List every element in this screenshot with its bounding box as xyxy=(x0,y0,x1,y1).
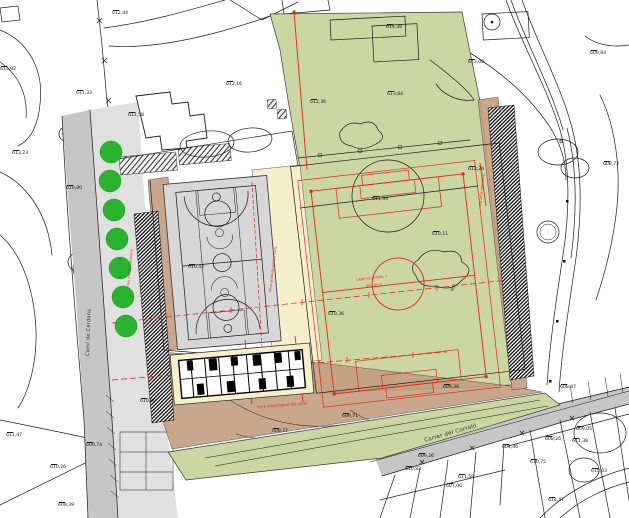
tree-icon xyxy=(103,199,125,221)
tree-icon xyxy=(99,170,121,192)
school-building xyxy=(136,92,207,150)
tree-icon xyxy=(106,228,128,250)
site-plan-drawing: 612,44611,33611,58613,23613,92612,16612,… xyxy=(0,0,629,518)
tree-icon xyxy=(115,315,137,337)
tree-icon xyxy=(109,257,131,279)
tree-icon xyxy=(100,141,122,163)
plan-canvas xyxy=(0,0,629,518)
basketball-court xyxy=(163,175,281,349)
tree-icon xyxy=(112,286,134,308)
